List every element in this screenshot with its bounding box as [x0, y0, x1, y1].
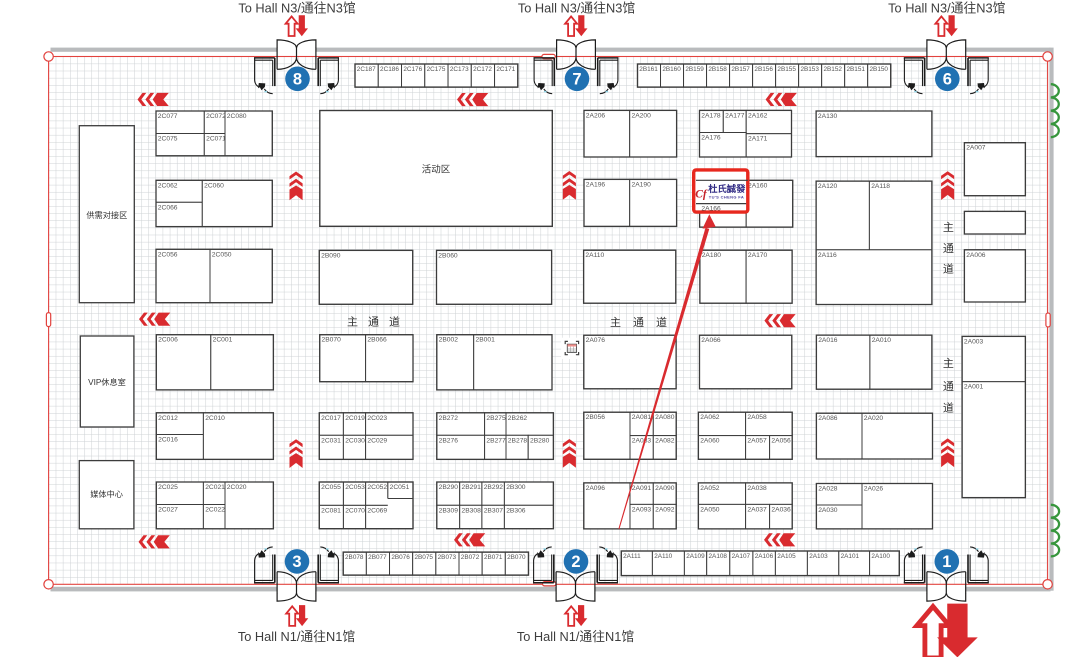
svg-text:2A116: 2A116: [818, 252, 837, 259]
svg-text:2A001: 2A001: [964, 384, 984, 391]
svg-text:2A038: 2A038: [747, 485, 767, 492]
svg-text:2B066: 2B066: [367, 337, 387, 344]
svg-text:2B292: 2B292: [484, 484, 504, 491]
svg-text:2A091: 2A091: [632, 485, 652, 492]
svg-text:2A200: 2A200: [632, 112, 652, 119]
svg-text:2A176: 2A176: [701, 135, 721, 142]
svg-text:To Hall N3/通往N3馆: To Hall N3/通往N3馆: [518, 1, 636, 16]
svg-text:通: 通: [943, 242, 954, 255]
svg-text:2B152: 2B152: [823, 66, 842, 73]
svg-text:2C187: 2C187: [357, 66, 376, 73]
svg-text:2C025: 2C025: [158, 484, 178, 491]
svg-text:To Hall N1/通往N1馆: To Hall N1/通往N1馆: [238, 629, 356, 644]
svg-text:2B308: 2B308: [462, 507, 482, 514]
svg-text:2A066: 2A066: [701, 337, 721, 344]
svg-text:通: 通: [368, 316, 379, 329]
svg-text:2A178: 2A178: [701, 112, 721, 119]
svg-text:2A016: 2A016: [818, 337, 838, 344]
svg-text:2A090: 2A090: [655, 485, 675, 492]
svg-text:6: 6: [943, 71, 952, 89]
svg-text:To Hall N3/通往N3馆: To Hall N3/通往N3馆: [238, 1, 356, 16]
svg-text:2C075: 2C075: [158, 136, 178, 143]
svg-text:2A110: 2A110: [585, 252, 604, 259]
svg-text:2A060: 2A060: [700, 438, 720, 445]
svg-text:TU'S CHENG FA: TU'S CHENG FA: [709, 194, 744, 199]
svg-text:2B275: 2B275: [486, 415, 506, 422]
svg-text:2A190: 2A190: [632, 181, 652, 188]
svg-text:2A111: 2A111: [623, 553, 641, 560]
svg-text:2B280: 2B280: [530, 437, 550, 444]
svg-text:2C176: 2C176: [403, 66, 422, 73]
svg-text:2A057: 2A057: [747, 438, 767, 445]
svg-text:2C001: 2C001: [213, 337, 233, 344]
svg-text:2B307: 2B307: [484, 507, 504, 514]
svg-text:2C020: 2C020: [227, 484, 247, 491]
svg-text:2A007: 2A007: [966, 145, 986, 152]
svg-text:2B071: 2B071: [484, 554, 503, 561]
svg-text:2C012: 2C012: [158, 415, 178, 422]
svg-text:2A030: 2A030: [818, 507, 838, 514]
svg-text:2A162: 2A162: [748, 112, 768, 119]
svg-text:2B090: 2B090: [321, 252, 341, 259]
svg-text:2C070: 2C070: [345, 507, 365, 514]
svg-text:2A020: 2A020: [864, 415, 884, 422]
svg-text:2C080: 2C080: [227, 113, 247, 120]
svg-text:2B156: 2B156: [754, 66, 773, 73]
svg-text:2C062: 2C062: [158, 182, 178, 189]
svg-text:2A103: 2A103: [809, 553, 828, 560]
svg-text:主: 主: [943, 221, 954, 234]
svg-text:2C171: 2C171: [496, 66, 515, 73]
svg-text:2A160: 2A160: [748, 182, 768, 189]
svg-text:2A196: 2A196: [586, 181, 606, 188]
svg-text:3: 3: [292, 553, 301, 571]
svg-text:道: 道: [656, 315, 667, 329]
svg-text:2A118: 2A118: [871, 183, 890, 190]
svg-text:2A026: 2A026: [864, 486, 884, 493]
svg-text:To Hall N1/通往N1馆: To Hall N1/通往N1馆: [517, 629, 635, 644]
svg-text:2A177: 2A177: [725, 112, 745, 119]
svg-text:道: 道: [943, 262, 954, 276]
svg-text:2C175: 2C175: [427, 66, 446, 73]
svg-text:2B075: 2B075: [414, 554, 433, 561]
svg-text:2A093: 2A093: [632, 506, 652, 513]
svg-text:2A050: 2A050: [700, 506, 720, 513]
svg-text:2B309: 2B309: [439, 507, 459, 514]
svg-text:2B159: 2B159: [685, 66, 704, 73]
svg-text:2B060: 2B060: [438, 252, 458, 259]
svg-text:2C023: 2C023: [367, 415, 387, 422]
svg-text:2A105: 2A105: [777, 553, 796, 560]
svg-text:2C050: 2C050: [212, 251, 232, 258]
svg-text:2A037: 2A037: [747, 506, 767, 513]
svg-text:2C066: 2C066: [158, 204, 178, 211]
svg-text:2C006: 2C006: [158, 337, 178, 344]
svg-text:2A062: 2A062: [700, 414, 720, 421]
svg-text:2A083: 2A083: [632, 438, 652, 445]
svg-text:2A107: 2A107: [732, 553, 751, 560]
svg-text:2A130: 2A130: [818, 113, 838, 120]
svg-text:2B002: 2B002: [439, 337, 459, 344]
svg-text:2C021: 2C021: [205, 484, 225, 491]
svg-text:2A110: 2A110: [654, 553, 672, 560]
svg-text:2B155: 2B155: [777, 66, 796, 73]
svg-text:道: 道: [943, 401, 954, 415]
svg-text:2B077: 2B077: [368, 554, 387, 561]
svg-text:2C029: 2C029: [367, 437, 387, 444]
svg-text:2C019: 2C019: [345, 415, 365, 422]
svg-text:2A171: 2A171: [748, 136, 768, 143]
svg-text:2A036: 2A036: [771, 506, 791, 513]
svg-text:2C053: 2C053: [345, 484, 365, 491]
svg-text:8: 8: [293, 71, 302, 89]
svg-text:2A010: 2A010: [872, 337, 892, 344]
svg-text:2B157: 2B157: [731, 66, 750, 73]
svg-text:2B276: 2B276: [439, 437, 459, 444]
svg-text:2A206: 2A206: [586, 112, 606, 119]
svg-text:2C016: 2C016: [158, 437, 178, 444]
svg-text:主: 主: [347, 316, 358, 329]
svg-text:2A076: 2A076: [586, 337, 606, 344]
svg-text:活动区: 活动区: [422, 164, 451, 176]
svg-text:2C081: 2C081: [321, 507, 341, 514]
svg-text:2A170: 2A170: [748, 252, 768, 259]
svg-text:2C010: 2C010: [205, 415, 225, 422]
svg-text:2C031: 2C031: [321, 437, 341, 444]
svg-text:2B262: 2B262: [508, 415, 528, 422]
svg-text:2A109: 2A109: [686, 553, 705, 560]
svg-text:2A101: 2A101: [841, 553, 860, 560]
svg-text:2B073: 2B073: [438, 554, 457, 561]
svg-text:2B151: 2B151: [846, 66, 865, 73]
svg-text:2B070: 2B070: [322, 337, 342, 344]
svg-text:2C030: 2C030: [345, 437, 365, 444]
svg-text:7: 7: [572, 71, 581, 89]
svg-text:通: 通: [943, 380, 954, 393]
svg-text:2C051: 2C051: [390, 484, 410, 491]
svg-text:2B161: 2B161: [639, 66, 658, 73]
svg-text:2C060: 2C060: [204, 182, 224, 189]
svg-text:通: 通: [633, 316, 644, 329]
svg-text:2B153: 2B153: [800, 66, 819, 73]
svg-text:2C056: 2C056: [158, 251, 178, 258]
svg-text:2C017: 2C017: [321, 415, 341, 422]
svg-text:2A081: 2A081: [632, 414, 652, 421]
svg-text:2C022: 2C022: [205, 507, 225, 514]
svg-text:2: 2: [571, 553, 580, 571]
svg-text:2A086: 2A086: [818, 415, 838, 422]
svg-text:2C069: 2C069: [367, 507, 387, 514]
svg-text:2C077: 2C077: [158, 113, 178, 120]
svg-text:To Hall N3/通往N3馆: To Hall N3/通往N3馆: [888, 1, 1006, 16]
svg-text:Cf: Cf: [695, 189, 708, 201]
svg-text:主: 主: [610, 316, 621, 329]
svg-text:媒体中心: 媒体中心: [90, 489, 123, 499]
svg-text:2B001: 2B001: [476, 337, 496, 344]
svg-text:2A058: 2A058: [747, 414, 767, 421]
svg-text:2B278: 2B278: [508, 437, 528, 444]
svg-text:2A096: 2A096: [586, 485, 606, 492]
svg-text:2B160: 2B160: [662, 66, 681, 73]
svg-text:供需对接区: 供需对接区: [86, 210, 127, 220]
svg-text:2A108: 2A108: [709, 553, 728, 560]
svg-text:2B070: 2B070: [507, 554, 526, 561]
svg-text:2A003: 2A003: [964, 338, 984, 345]
svg-text:2A166: 2A166: [701, 206, 721, 213]
svg-text:2A082: 2A082: [655, 438, 675, 445]
svg-text:2A080: 2A080: [655, 414, 675, 421]
svg-text:杜氏誠發: 杜氏誠發: [708, 183, 746, 194]
svg-text:2B272: 2B272: [439, 415, 459, 422]
svg-text:2A056: 2A056: [771, 438, 791, 445]
svg-text:2A092: 2A092: [655, 506, 675, 513]
svg-text:2C072: 2C072: [206, 113, 226, 120]
svg-text:2C186: 2C186: [380, 66, 399, 73]
svg-text:2B306: 2B306: [506, 507, 526, 514]
svg-text:2A028: 2A028: [818, 486, 838, 493]
svg-text:2B150: 2B150: [870, 66, 889, 73]
svg-text:2B291: 2B291: [462, 484, 482, 491]
svg-text:2C172: 2C172: [473, 66, 492, 73]
svg-text:2C173: 2C173: [450, 66, 469, 73]
svg-text:主: 主: [943, 357, 954, 370]
svg-text:2B300: 2B300: [506, 484, 526, 491]
svg-text:2B056: 2B056: [586, 414, 606, 421]
svg-text:2B158: 2B158: [708, 66, 727, 73]
svg-text:1: 1: [942, 553, 951, 571]
svg-text:2A100: 2A100: [871, 553, 890, 560]
svg-text:2B078: 2B078: [345, 554, 364, 561]
svg-text:VIP休息室: VIP休息室: [88, 377, 126, 387]
svg-text:2C071: 2C071: [206, 136, 226, 143]
svg-text:2C055: 2C055: [321, 484, 341, 491]
svg-text:2A120: 2A120: [818, 183, 838, 190]
svg-text:2B290: 2B290: [439, 484, 459, 491]
svg-text:2B072: 2B072: [461, 554, 480, 561]
svg-text:2C052: 2C052: [367, 484, 387, 491]
svg-text:2B076: 2B076: [391, 554, 410, 561]
svg-text:道: 道: [389, 315, 400, 329]
svg-text:2A180: 2A180: [702, 252, 722, 259]
svg-text:2A106: 2A106: [755, 553, 774, 560]
svg-text:2A006: 2A006: [966, 252, 986, 259]
svg-text:2C027: 2C027: [158, 507, 178, 514]
svg-text:2A052: 2A052: [700, 485, 720, 492]
svg-text:2B277: 2B277: [486, 437, 506, 444]
